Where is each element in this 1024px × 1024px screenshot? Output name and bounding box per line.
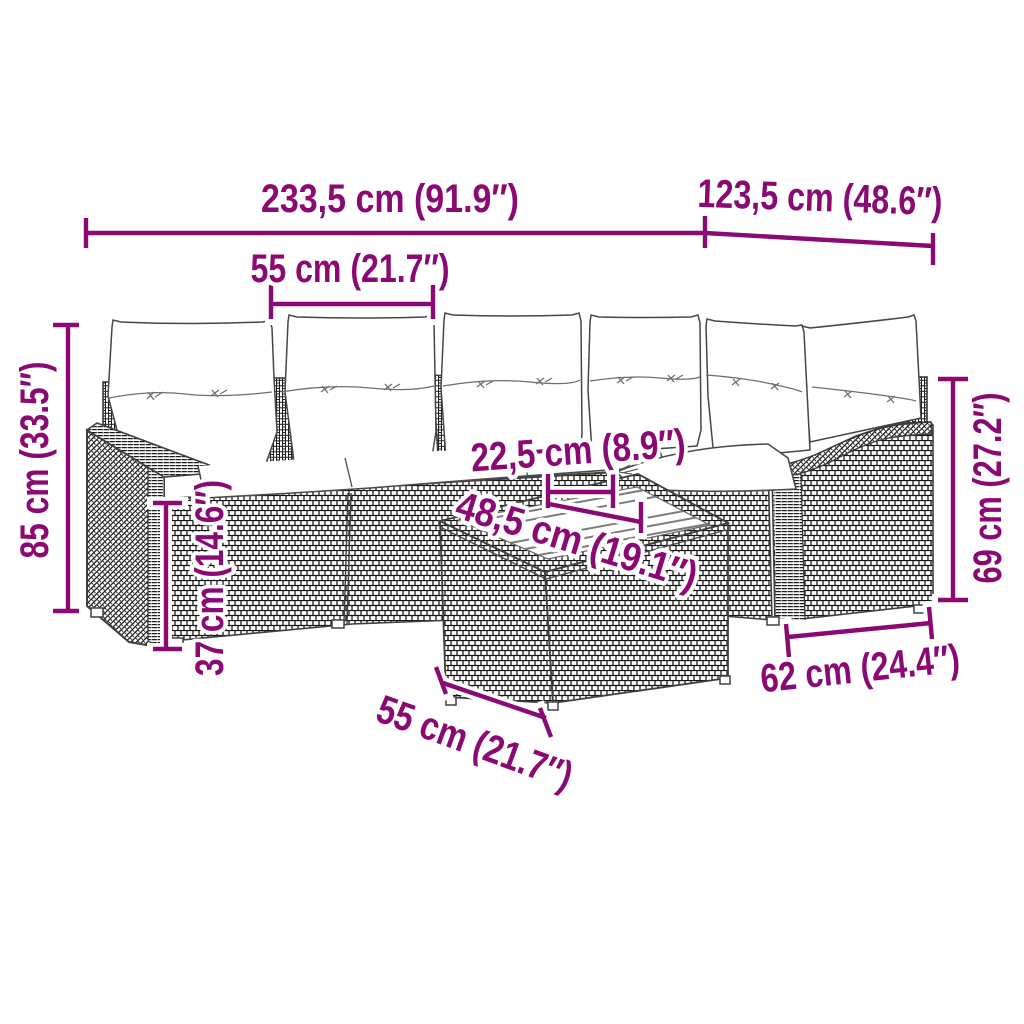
svg-text:55 cm (21.7″): 55 cm (21.7″): [251, 247, 450, 291]
svg-text:123,5 cm (48.6″): 123,5 cm (48.6″): [697, 172, 943, 225]
svg-text:85 cm (33.5″): 85 cm (33.5″): [13, 362, 57, 559]
svg-text:37 cm (14.6″): 37 cm (14.6″): [188, 480, 232, 676]
svg-text:69 cm (27.2″): 69 cm (27.2″): [966, 393, 1010, 584]
svg-text:233,5 cm (91.9″): 233,5 cm (91.9″): [261, 177, 519, 221]
